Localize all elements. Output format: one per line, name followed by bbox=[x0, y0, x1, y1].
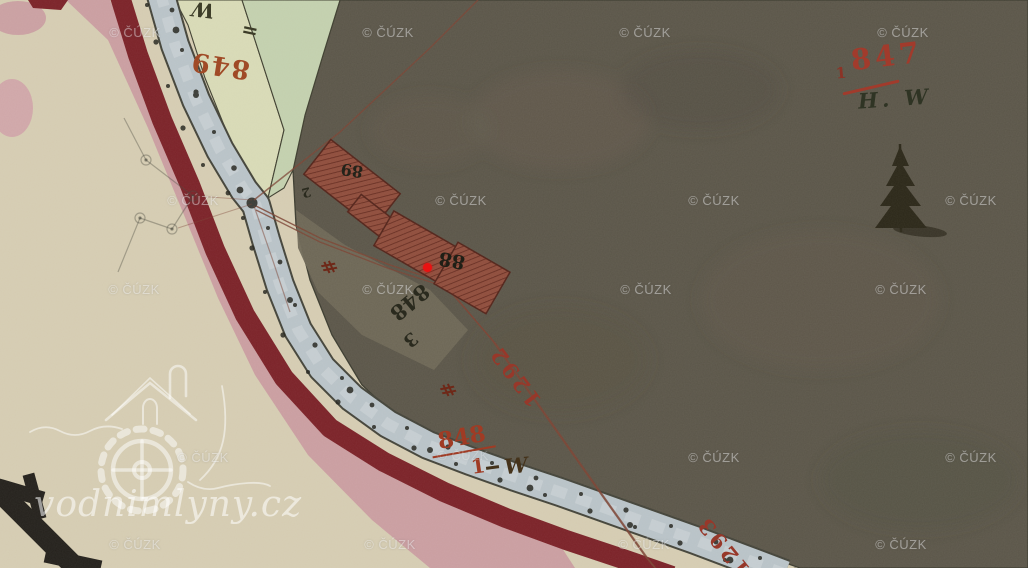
vodnimlyny-logo-text: vodnimlyny.cz bbox=[34, 484, 294, 525]
cuzk-watermark: © ČÚZK bbox=[421, 193, 501, 208]
cuzk-watermark: © ČÚZK bbox=[95, 25, 175, 40]
cuzk-watermark: © ČÚZK bbox=[861, 282, 941, 297]
cuzk-watermark: © ČÚZK bbox=[931, 193, 1011, 208]
cuzk-watermark: © ČÚZK bbox=[348, 25, 428, 40]
cuzk-watermark: © ČÚZK bbox=[674, 193, 754, 208]
cuzk-watermark: © ČÚZK bbox=[163, 450, 243, 465]
cuzk-watermark: © ČÚZK bbox=[931, 450, 1011, 465]
cuzk-watermark: © ČÚZK bbox=[605, 25, 685, 40]
boundary-tick-marker: = bbox=[236, 18, 264, 43]
cuzk-watermark: © ČÚZK bbox=[350, 537, 430, 552]
cuzk-watermark: © ČÚZK bbox=[861, 537, 941, 552]
cuzk-watermark: © ČÚZK bbox=[863, 25, 943, 40]
parcel-847-subnumber: 1 bbox=[833, 65, 848, 81]
cuzk-watermark: © ČÚZK bbox=[95, 537, 175, 552]
cuzk-watermark: © ČÚZK bbox=[674, 450, 754, 465]
cuzk-watermark: © ČÚZK bbox=[153, 193, 233, 208]
usage-847-label: H. W bbox=[842, 84, 947, 112]
cuzk-watermark: © ČÚZK bbox=[348, 282, 428, 297]
cuzk-watermark: © ČÚZK bbox=[606, 282, 686, 297]
highlight-point-marker[interactable] bbox=[423, 263, 432, 272]
cuzk-watermark: © ČÚZK bbox=[604, 537, 684, 552]
cuzk-watermark: © ČÚZK bbox=[94, 282, 174, 297]
cuzk-watermark: © ČÚZK bbox=[423, 448, 503, 463]
map-canvas[interactable]: W 849 = 89 2 88 848 3 # # 1292 848 1 W 1… bbox=[0, 0, 1028, 568]
